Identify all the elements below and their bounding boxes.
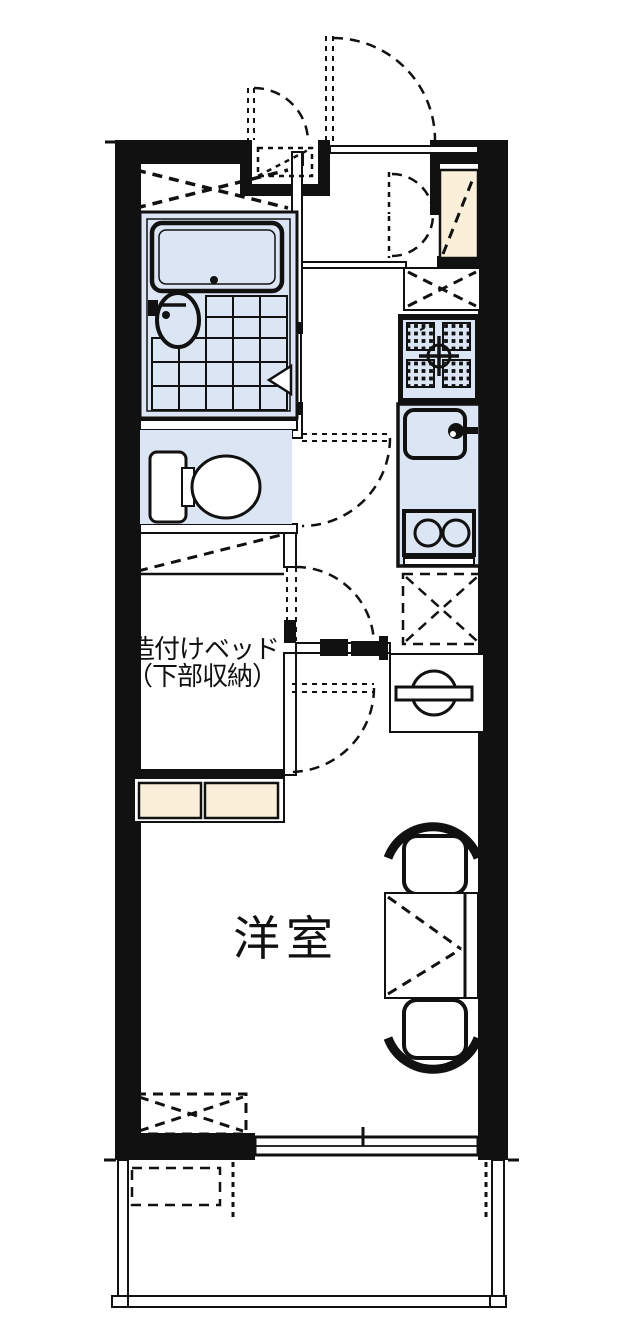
entrance-door — [326, 36, 435, 143]
equipment-space-dashed-x — [136, 1094, 246, 1134]
floor-plan-svg: 造付けベッド （下部収納） 洋室 — [0, 0, 640, 1339]
chair-lower-icon — [388, 1000, 478, 1069]
floor-plan: 造付けベッド （下部収納） 洋室 — [0, 0, 640, 1339]
wall-toilet-top — [140, 420, 297, 430]
two-burner-icon — [404, 511, 474, 565]
kitchen — [390, 268, 484, 732]
bathroom — [136, 170, 297, 418]
jamb — [284, 620, 296, 643]
entrance-step — [300, 262, 406, 268]
living-room: 洋室 — [136, 827, 478, 1155]
balcony-equipment-space — [132, 1168, 220, 1205]
storage-space-dashed-x — [403, 574, 480, 644]
bed-label-line1: 造付けベッド — [129, 635, 279, 665]
wall-toilet-bottom — [140, 524, 297, 533]
entrance-threshold — [330, 146, 478, 153]
balcony-rail-left — [118, 1160, 128, 1298]
balcony — [112, 1160, 506, 1307]
washing-machine-icon — [390, 654, 484, 732]
gas-stove-icon — [398, 314, 480, 404]
toilet-icon — [150, 452, 260, 522]
niche-wall-bottom — [240, 184, 330, 196]
door-leaf-black — [351, 641, 382, 656]
room-door-swing — [290, 688, 374, 772]
bed-foot-storage — [134, 770, 284, 822]
bed-label-line2: （下部収納） — [127, 662, 277, 692]
toilet-door — [302, 434, 390, 526]
dining-table-icon — [385, 893, 478, 998]
door-leaf-black — [320, 639, 348, 656]
wall-right — [478, 140, 508, 1160]
sliding-window-icon — [255, 1127, 478, 1155]
chair-upper-icon — [388, 827, 478, 894]
built-in-bed: 造付けベッド （下部収納） — [127, 535, 284, 822]
hall-door-swing — [296, 567, 374, 645]
wall-bottom — [115, 1133, 255, 1160]
bathtub-icon — [152, 223, 282, 291]
wall-bed-right-lower — [284, 653, 296, 775]
balcony-rail-right — [492, 1160, 504, 1297]
balcony-rail-bottom — [112, 1296, 506, 1307]
hall-room-doors — [287, 567, 374, 772]
wall-top-left — [115, 140, 242, 164]
service-door — [248, 88, 308, 142]
wall-bed-right-upper — [284, 533, 296, 567]
jamb — [379, 636, 388, 660]
entrance-closet-double-door — [389, 172, 433, 258]
bed-diagonal — [138, 535, 281, 571]
refrigerator-space — [404, 268, 480, 310]
room-label: 洋室 — [233, 912, 339, 967]
toilet-room — [140, 430, 390, 526]
